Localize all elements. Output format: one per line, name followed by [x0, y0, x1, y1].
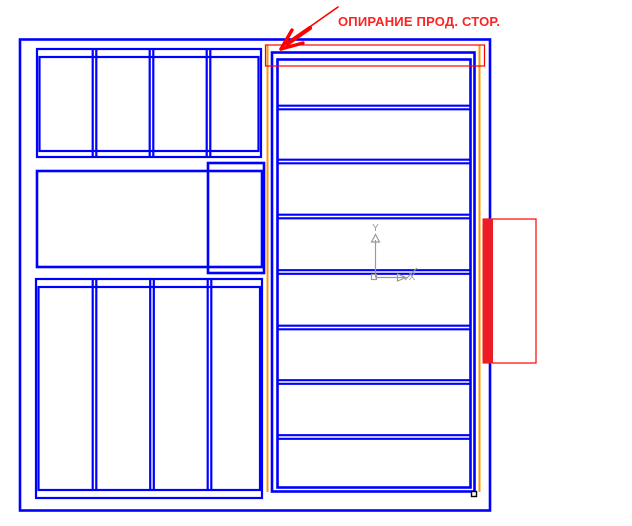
left-middle-panel-group[interactable]: [37, 163, 264, 273]
cad-viewport[interactable]: ОПИРАНИЕ ПРОД. СТОР. Y X: [0, 0, 632, 526]
left-top-panel-group[interactable]: [37, 49, 261, 157]
left-bottom-panel-group[interactable]: [36, 279, 262, 498]
narrow-panel-outline[interactable]: [208, 163, 264, 273]
panel-strip-dividers[interactable]: [93, 49, 211, 157]
wide-panel-outline[interactable]: [37, 171, 262, 267]
annotation-label: ОПИРАНИЕ ПРОД. СТОР.: [338, 14, 500, 29]
slab-row-dividers[interactable]: [278, 106, 470, 439]
support-filled-bar[interactable]: [483, 219, 494, 364]
ucs-y-label: Y: [372, 223, 379, 234]
bearing-zone-outline[interactable]: [266, 45, 485, 66]
support-highlight-group[interactable]: [483, 219, 537, 364]
ucs-x-label: X: [409, 272, 416, 283]
annotation-group[interactable]: ОПИРАНИЕ ПРОД. СТОР.: [266, 7, 501, 66]
right-slab-group[interactable]: [268, 45, 480, 497]
grip-point-marker[interactable]: [472, 492, 477, 497]
panel-strip-dividers[interactable]: [93, 279, 212, 490]
panel-outline[interactable]: [36, 279, 262, 498]
slab-outline[interactable]: [272, 53, 475, 492]
